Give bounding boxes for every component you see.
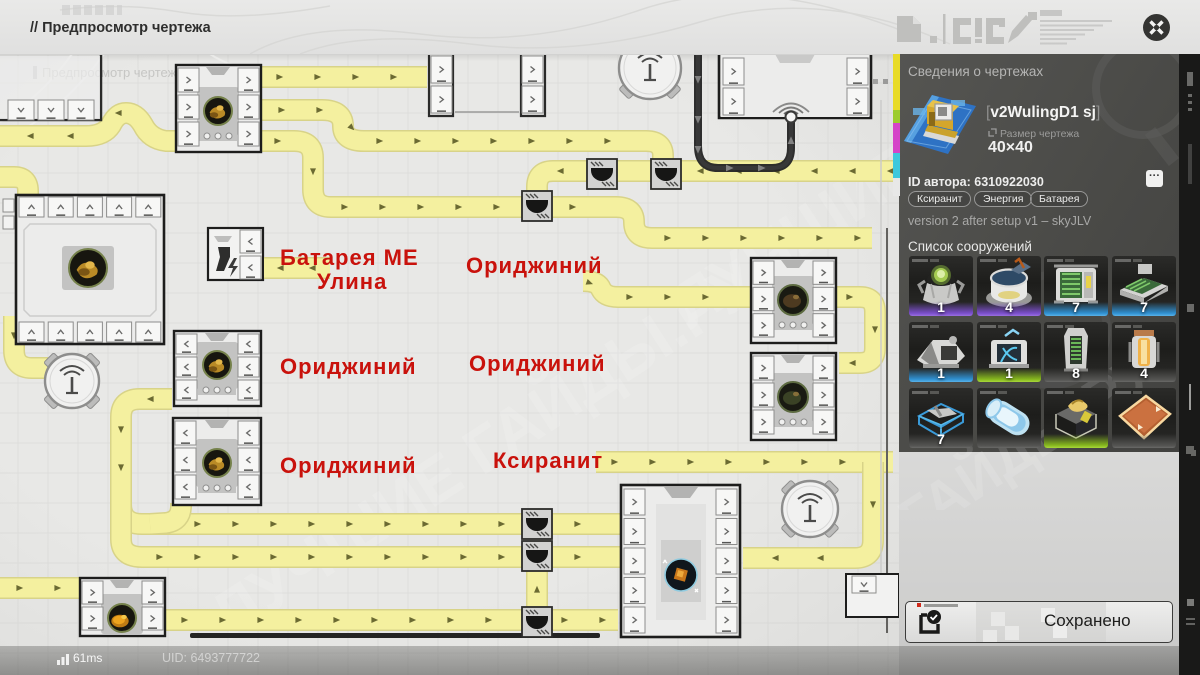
svg-text:Ориджиний: Ориджиний xyxy=(466,253,603,278)
svg-text:Ориджиний: Ориджиний xyxy=(280,453,417,478)
svg-text:Ксиранит: Ксиранит xyxy=(493,448,603,473)
svg-text:Ориджиний: Ориджиний xyxy=(469,351,606,376)
svg-text:Ориджиний: Ориджиний xyxy=(280,354,417,379)
svg-text:Батарея МЕ: Батарея МЕ xyxy=(280,245,419,270)
svg-text:Улина: Улина xyxy=(317,269,387,294)
